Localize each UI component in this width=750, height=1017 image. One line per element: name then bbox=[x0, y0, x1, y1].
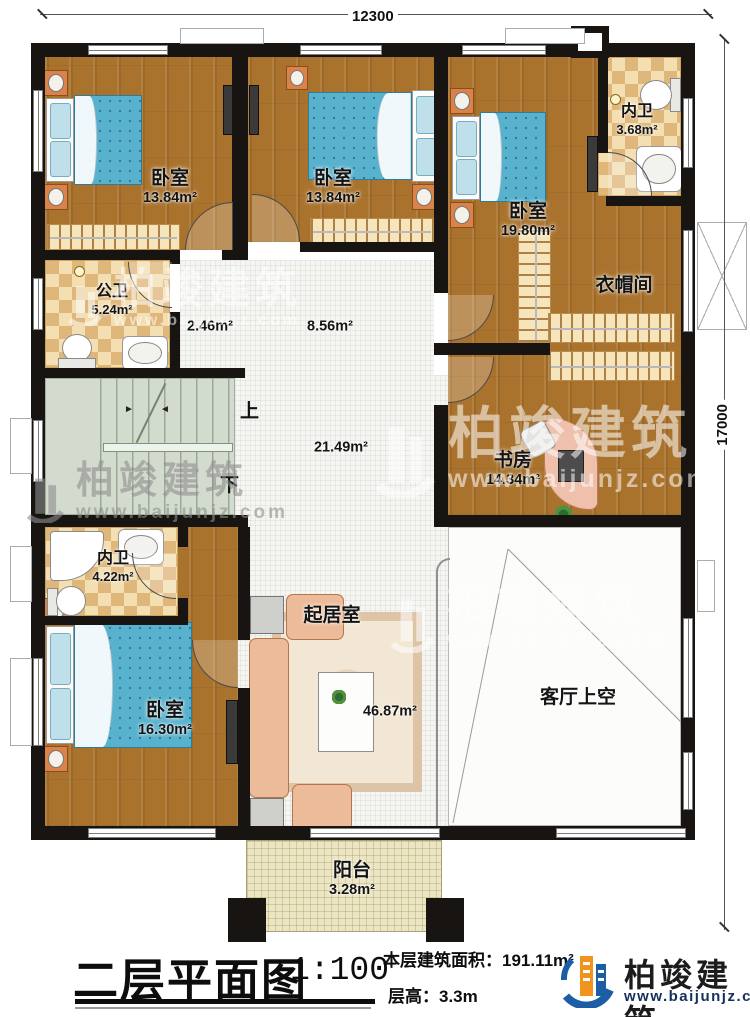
room-label-living: 起居室 bbox=[303, 605, 360, 627]
window bbox=[33, 420, 43, 482]
brand-name: 柏竣建筑 bbox=[624, 950, 750, 1017]
nightstand bbox=[450, 88, 474, 114]
wardrobe-bedroom2 bbox=[310, 218, 434, 244]
bed-pillow bbox=[50, 688, 71, 740]
wall bbox=[598, 57, 608, 153]
bed-mattress bbox=[480, 112, 546, 202]
room-label-bedroom4: 卧室16.30m² bbox=[138, 700, 192, 740]
window bbox=[462, 45, 546, 55]
tv-bedroom4 bbox=[226, 700, 238, 764]
floor-void bbox=[448, 527, 681, 826]
wall bbox=[31, 616, 188, 625]
window bbox=[683, 752, 693, 810]
window bbox=[33, 658, 43, 746]
brand-url: www.baijunjz.com bbox=[624, 988, 750, 1005]
window bbox=[556, 828, 686, 838]
bed-pillow bbox=[416, 138, 436, 176]
table-flowers bbox=[332, 690, 346, 704]
stair-arrow-right-icon: ► bbox=[124, 404, 134, 415]
balcony-post bbox=[228, 898, 266, 942]
room-label-void: 客厅上空 bbox=[540, 687, 616, 709]
wall bbox=[434, 405, 448, 527]
window bbox=[683, 618, 693, 718]
wall bbox=[31, 368, 245, 378]
bed-pillow bbox=[50, 103, 71, 139]
title-underline bbox=[75, 999, 375, 1004]
nightstand bbox=[450, 202, 474, 228]
wall bbox=[238, 688, 250, 826]
nightstand bbox=[286, 66, 308, 90]
wardrobe-bedroom1 bbox=[47, 224, 180, 250]
tv-bedroom3 bbox=[587, 136, 598, 192]
title-underline-thin bbox=[75, 1007, 371, 1009]
bed-pillow bbox=[456, 159, 477, 195]
window bbox=[683, 230, 693, 332]
bed-pillow bbox=[50, 633, 71, 685]
wall bbox=[31, 515, 248, 527]
dimension-height: 17000 bbox=[714, 400, 731, 450]
wall bbox=[222, 250, 248, 260]
dimension-line-right bbox=[724, 40, 725, 930]
window-sill-decor bbox=[10, 658, 32, 746]
wall bbox=[300, 242, 434, 252]
wall bbox=[434, 515, 695, 527]
room-label-public-bath: 公卫5.24m² bbox=[91, 283, 132, 317]
toilet bbox=[56, 586, 86, 616]
window-frame-decor bbox=[505, 28, 585, 44]
plan-scale: 1:100 bbox=[290, 952, 389, 989]
room-label-balcony: 阳台3.28m² bbox=[329, 860, 375, 900]
cloakroom-closet-row1 bbox=[548, 313, 675, 343]
bed-mattress bbox=[308, 92, 412, 180]
wardrobe-bedroom3 bbox=[518, 228, 551, 343]
living-void-balustrade bbox=[436, 558, 450, 828]
window-sill-decor bbox=[10, 418, 32, 474]
sofa-main bbox=[249, 638, 289, 798]
balcony-door bbox=[310, 828, 440, 838]
bay-roof-decor bbox=[697, 222, 747, 330]
dimension-width: 12300 bbox=[348, 8, 398, 25]
sink bbox=[122, 336, 168, 370]
wall bbox=[434, 57, 448, 237]
bed-pillow bbox=[456, 121, 477, 157]
side-table bbox=[250, 596, 284, 634]
floor-area-text: 本层建筑面积：191.11m² bbox=[383, 946, 574, 971]
room-label-bath-top: 内卫3.68m² bbox=[616, 103, 657, 137]
window bbox=[88, 45, 168, 55]
room-label-bedroom1: 卧室13.84m² bbox=[143, 168, 197, 208]
nightstand bbox=[44, 184, 68, 210]
balcony-post bbox=[426, 898, 464, 942]
area-label-hall-mid: 8.56m² bbox=[307, 318, 353, 335]
wall bbox=[178, 527, 188, 547]
window-sill-decor bbox=[10, 546, 32, 602]
tv-bedroom2 bbox=[249, 85, 259, 135]
room-label-cloakroom: 衣帽间 bbox=[595, 275, 652, 297]
window bbox=[88, 828, 216, 838]
stair-up-label: 上 bbox=[240, 396, 259, 423]
room-label-bedroom2: 卧室13.84m² bbox=[306, 168, 360, 208]
stair-rail bbox=[103, 443, 233, 452]
brand-logo-icon bbox=[558, 946, 618, 1008]
stair-down-label: 下 bbox=[220, 470, 239, 497]
wall bbox=[238, 527, 250, 640]
light-fixture bbox=[74, 266, 85, 277]
nightstand bbox=[44, 746, 68, 772]
wall bbox=[31, 250, 171, 260]
floor-plan: ► ◄ 上 下 bbox=[0, 0, 750, 1017]
window bbox=[33, 278, 43, 330]
window bbox=[683, 98, 693, 168]
area-label-living: 46.87m² bbox=[363, 703, 417, 720]
cloakroom-closet-row2 bbox=[548, 351, 675, 381]
stair-arrow-left-icon: ◄ bbox=[160, 404, 170, 415]
area-label-hall-main: 21.49m² bbox=[314, 439, 368, 456]
computer-monitor bbox=[558, 450, 584, 482]
wall bbox=[434, 237, 448, 293]
window-sill-decor bbox=[697, 560, 715, 612]
void-diagonal-lines bbox=[449, 528, 682, 827]
nightstand bbox=[412, 184, 436, 210]
sofa-armchair bbox=[292, 784, 352, 832]
bed-mattress bbox=[74, 95, 142, 185]
wall bbox=[606, 196, 695, 206]
window bbox=[300, 45, 382, 55]
wall bbox=[434, 343, 550, 355]
room-label-study: 书房14.34m² bbox=[486, 450, 540, 490]
bed-pillow bbox=[50, 141, 71, 177]
window-frame-decor bbox=[180, 28, 264, 44]
room-label-bedroom3: 卧室19.80m² bbox=[501, 201, 555, 241]
wall bbox=[232, 57, 248, 250]
area-label-hall-small: 2.46m² bbox=[187, 318, 233, 335]
nightstand bbox=[44, 70, 68, 96]
window bbox=[33, 90, 43, 172]
room-label-bath-bottom: 内卫4.22m² bbox=[92, 550, 133, 584]
bed-pillow bbox=[416, 96, 436, 134]
floor-height-text: 层高：3.3m bbox=[388, 982, 478, 1007]
